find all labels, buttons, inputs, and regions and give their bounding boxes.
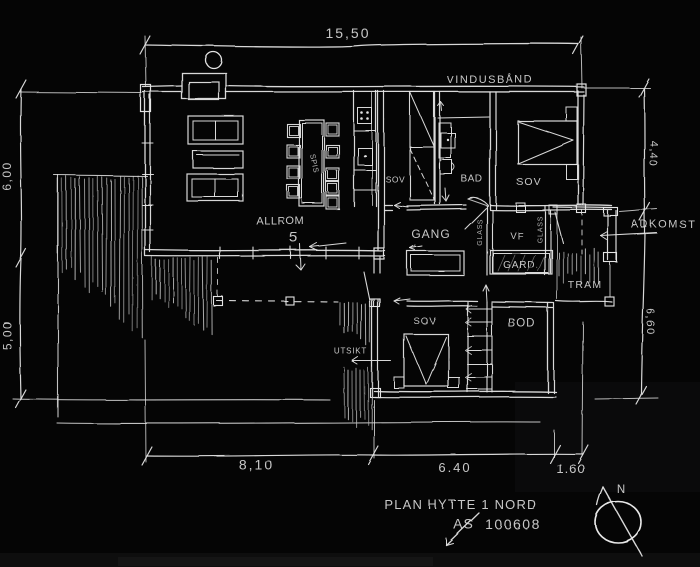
svg-text:1.60: 1.60 — [556, 461, 585, 476]
svg-text:BAD: BAD — [461, 174, 483, 185]
svg-text:SOV: SOV — [413, 316, 436, 327]
svg-text:TRAM: TRAM — [568, 279, 603, 291]
svg-text:GANG: GANG — [411, 227, 450, 241]
svg-text:100608: 100608 — [485, 516, 541, 532]
svg-text:4,40: 4,40 — [647, 140, 659, 167]
svg-text:8,10: 8,10 — [239, 457, 274, 473]
svg-text:15,50: 15,50 — [325, 25, 370, 41]
svg-text:6,60: 6,60 — [644, 308, 656, 335]
svg-text:BOD: BOD — [508, 318, 536, 330]
svg-text:ADKOMST: ADKOMST — [632, 219, 697, 231]
svg-text:SOV: SOV — [516, 176, 541, 188]
svg-text:ALLROM: ALLROM — [256, 215, 304, 227]
svg-text:6,00: 6,00 — [0, 161, 14, 190]
svg-text:5,00: 5,00 — [0, 320, 14, 349]
svg-text:SOV: SOV — [385, 174, 404, 184]
svg-text:GARD.: GARD. — [503, 260, 539, 271]
svg-text:GLASS: GLASS — [477, 218, 484, 245]
svg-text:6.40: 6.40 — [438, 460, 471, 475]
svg-text:5: 5 — [289, 229, 298, 246]
svg-text:N: N — [617, 484, 625, 496]
svg-text:GLASS: GLASS — [537, 215, 544, 242]
svg-text:VINDUSBÅND: VINDUSBÅND — [446, 73, 533, 86]
svg-text:UTSIKT: UTSIKT — [334, 347, 367, 356]
svg-text:AS: AS — [454, 516, 475, 532]
svg-text:PLAN HYTTE 1 NORD: PLAN HYTTE 1 NORD — [384, 497, 537, 512]
svg-text:VF: VF — [510, 231, 523, 242]
